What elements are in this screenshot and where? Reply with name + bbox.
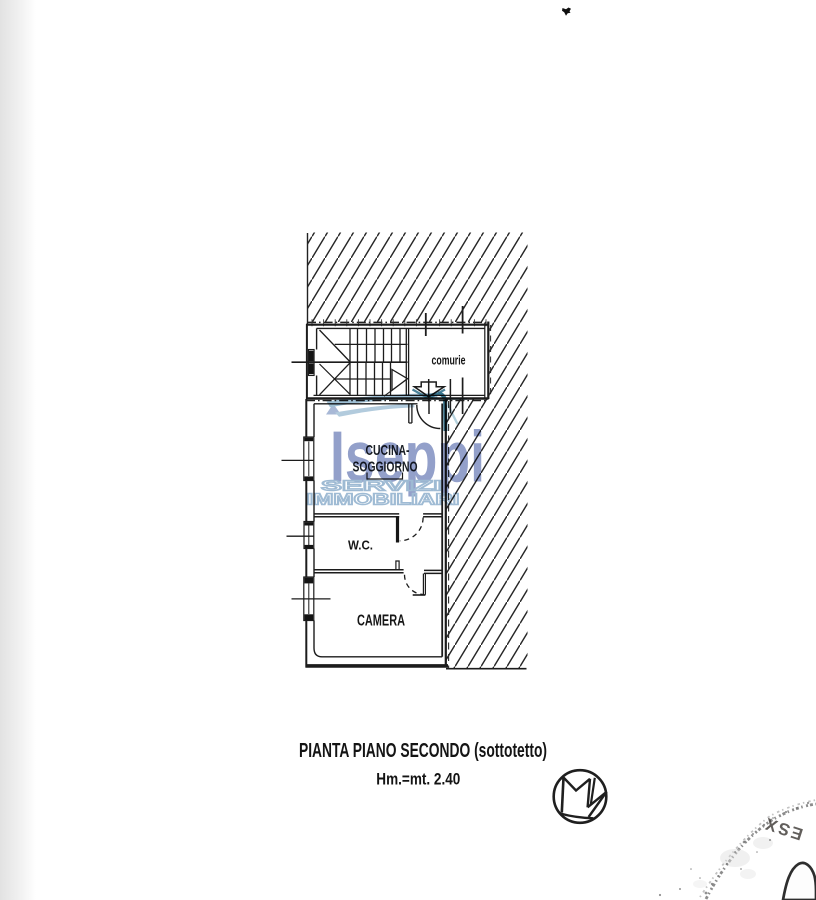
svg-text:comurie: comurie xyxy=(432,353,466,368)
svg-text:W.C.: W.C. xyxy=(348,538,373,553)
svg-text:Hm.=mt. 2.40: Hm.=mt. 2.40 xyxy=(376,770,460,789)
svg-text:IMMOBILIARI: IMMOBILIARI xyxy=(307,492,460,509)
svg-text:PIANTA PIANO SECONDO (sottotet: PIANTA PIANO SECONDO (sottotetto) xyxy=(299,740,547,762)
svg-text:CAMERA: CAMERA xyxy=(357,612,405,629)
